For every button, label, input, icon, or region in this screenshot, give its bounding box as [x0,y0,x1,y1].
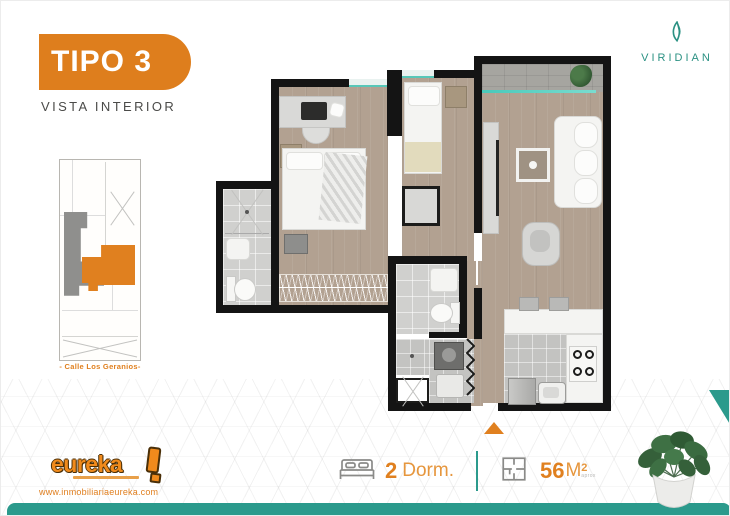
tv [496,140,499,216]
wall [387,70,402,136]
vista-subtitle: VISTA INTERIOR [41,99,176,114]
door-leaf [476,233,478,285]
bed-throw-blanket [319,152,368,224]
laptop [301,102,327,120]
folding-door [466,339,475,399]
wall [271,79,279,313]
bedroom2-window [402,70,434,78]
kitchen-counter [504,309,603,334]
siteplan-line [62,310,138,311]
shower-drain [245,210,249,214]
eureka-exclamation-icon [145,446,161,473]
bottom-bar [7,503,730,516]
wall [429,332,467,338]
flyer-page: TIPO 3 VISTA INTERIOR VIRIDIAN - Calle L… [0,0,730,516]
wall [459,264,467,334]
laundry-sink [436,374,464,398]
sofa-cushion [574,178,598,204]
site-plan-key: - Calle Los Geranios- [59,159,141,361]
bedrooms-value: 2 [385,458,397,484]
burner [573,367,582,376]
tipo-label: TIPO 3 [39,45,152,79]
specs-row: 2 Dorm. 56 M 2 aprox [339,449,596,493]
burner [585,350,594,359]
bedroom2-closet [402,186,440,226]
wall [388,256,467,264]
bed-pillow [286,152,323,170]
leaf-icon [667,32,687,49]
walk-closet-hangers [279,274,388,302]
bed-pillow [408,86,440,106]
wall [474,56,611,64]
area-note: aprox [581,474,596,479]
area-value: 56 [540,458,564,484]
bathroom-sink [226,238,250,260]
brand-block: VIRIDIAN [629,21,725,64]
master-bedroom-window [349,79,387,87]
terrace-glass-door [482,90,596,93]
duct-shaft [396,378,429,403]
tipo-banner: TIPO 3 [39,34,191,90]
area-unit: M [565,460,581,482]
stove [569,346,597,382]
bed-blanket [405,142,441,172]
specs-divider [476,451,478,491]
brand-name: VIRIDIAN [629,52,725,64]
floor-plan [216,56,616,434]
website-link[interactable]: www.inmobiliariaeureka.com [39,487,158,497]
bathroom2-sink [430,268,458,292]
wall [474,61,482,233]
eureka-logo-text: eureka [51,451,122,477]
wall [388,403,471,411]
sofa-cushion [574,122,598,148]
armchair-seat [530,230,550,252]
washer-door [442,348,456,362]
kitchen-sink [538,382,566,404]
bar-stool [519,297,539,311]
eureka-tagline-bar [73,476,139,479]
bar-stool [549,297,569,311]
wall [271,79,349,87]
wall [216,305,396,313]
nightstand [445,86,467,108]
toilet-bowl [234,278,256,301]
sink-basin [543,387,559,398]
sofa-cushion [574,150,598,176]
wall [388,256,396,411]
street-label: - Calle Los Geranios- [49,362,151,371]
closet-rod [279,287,388,288]
toilet-bowl [430,303,453,323]
floorplan-icon [500,455,528,488]
washing-machine [434,342,464,370]
siteplan-line [72,160,73,215]
kitchen-cabinet [508,378,536,405]
eureka-logo: eureka [51,451,191,487]
siteplan-highlighted-unit [82,245,135,295]
wall [603,56,611,411]
bed-icon [339,455,375,488]
bedrooms-label: Dorm. [402,460,454,482]
burner [585,367,594,376]
burner [573,350,582,359]
siteplan-street-hatch [62,336,138,359]
table-decor [529,161,537,169]
plant-photo [629,413,719,513]
bedroom-bench [284,234,308,254]
wall [216,181,271,189]
wall [216,181,223,313]
shower-drain [410,354,414,358]
eureka-exclamation-dot [149,472,161,483]
wall [474,288,482,339]
siteplan-stair-shaft [105,162,139,254]
entry-arrow-icon [484,422,504,434]
